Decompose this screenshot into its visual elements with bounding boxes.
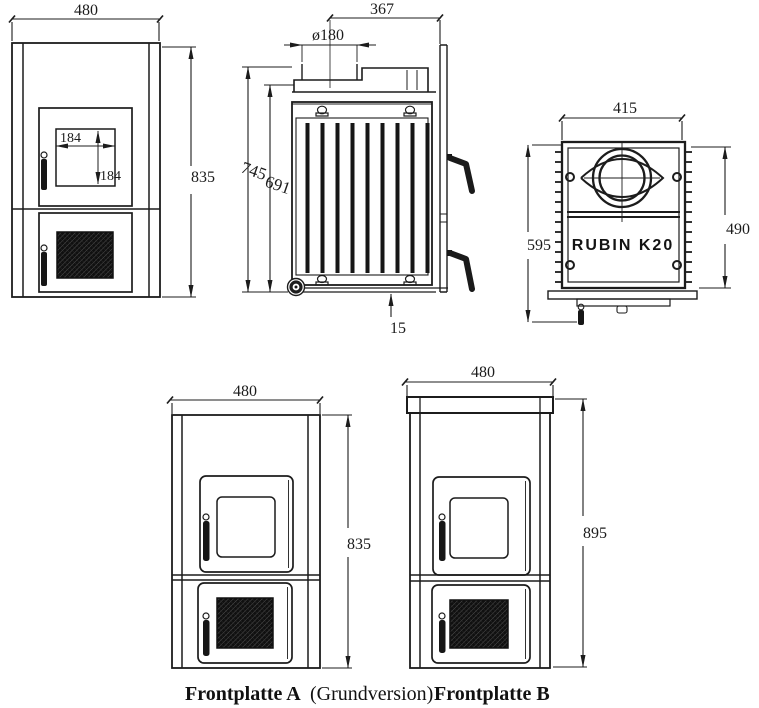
front-upper-door-handle: [41, 152, 47, 190]
front-ash-grille: [57, 232, 113, 278]
plate-a-height-label: 835: [347, 536, 371, 553]
top-divider: [567, 212, 680, 217]
plate-b-upper-handle: [439, 514, 446, 561]
plate-b-window: [450, 498, 508, 558]
side-door-handles: [447, 154, 472, 289]
caption: Frontplatte A (Grundversion) Frontplatte…: [185, 683, 550, 705]
drawing-sheet: 480 835 184 184: [0, 0, 759, 708]
plate-a-upper-handle: [203, 514, 210, 561]
screw-bosses: [566, 173, 681, 269]
glass-width-label: 184: [60, 131, 81, 146]
frontplatte-b-view: 480 895: [405, 364, 607, 668]
caption-grundversion: (Grundversion): [310, 683, 433, 705]
side-inner-height-label: 691: [263, 172, 293, 198]
side-total-height-label: 745: [239, 158, 269, 184]
plate-a-width-label: 480: [233, 383, 257, 400]
top-base-plate: [548, 291, 697, 325]
front-view: 480 835 184 184: [12, 2, 215, 297]
plate-b-width-dimension: [405, 382, 553, 396]
plate-a-window: [217, 497, 275, 557]
flue-opening: [581, 142, 663, 222]
stove-technical-drawing: 480 835 184 184: [0, 0, 759, 708]
transport-wheel: [288, 279, 305, 296]
top-width-label: 415: [613, 100, 637, 117]
side-bottom-clips: [316, 276, 416, 286]
caption-frontplatte-b: Frontplatte B: [434, 683, 550, 705]
side-view: 367 ø180 745 691 15: [239, 1, 472, 337]
front-lower-door-handle: [41, 245, 47, 286]
side-depth-label: 367: [370, 1, 394, 18]
glass-height-label: 184: [100, 169, 121, 184]
flue-diameter-label: ø180: [312, 27, 344, 44]
side-top-clips: [316, 106, 416, 116]
side-cooling-fins: [306, 123, 430, 273]
top-body-depth-dimension: [691, 147, 731, 288]
front-upper-door: [39, 108, 132, 206]
side-base: [288, 288, 448, 292]
plate-b-lower-handle: [439, 613, 446, 653]
plate-a-grille: [217, 598, 273, 648]
frontplatte-a-view: 480 835: [170, 383, 371, 668]
front-width-dimension: [12, 19, 160, 41]
plate-b-height-label: 895: [583, 525, 607, 542]
caption-frontplatte-a: Frontplatte A: [185, 683, 301, 705]
plate-a-width-dimension: [170, 400, 320, 414]
side-depth-dimension: [330, 18, 440, 44]
side-front-plate: [440, 45, 447, 292]
front-width-label: 480: [74, 2, 98, 19]
plate-b-width-label: 480: [471, 364, 495, 381]
plate-b-height-dimension: [553, 399, 587, 667]
top-total-depth-label: 595: [527, 237, 551, 254]
top-body-depth-label: 490: [726, 221, 750, 238]
top-view: RUBIN K20 415 595: [527, 100, 750, 325]
model-label: RUBIN K20: [572, 237, 674, 254]
base-gap-label: 15: [390, 320, 406, 337]
top-width-dimension: [562, 118, 682, 140]
top-body-outline: [562, 142, 685, 288]
plate-b-upper-door: [433, 477, 530, 575]
top-total-depth-dimension: [528, 145, 577, 322]
front-height-label: 835: [191, 169, 215, 186]
plate-b-grille: [450, 600, 508, 648]
plate-a-lower-handle: [203, 613, 210, 656]
